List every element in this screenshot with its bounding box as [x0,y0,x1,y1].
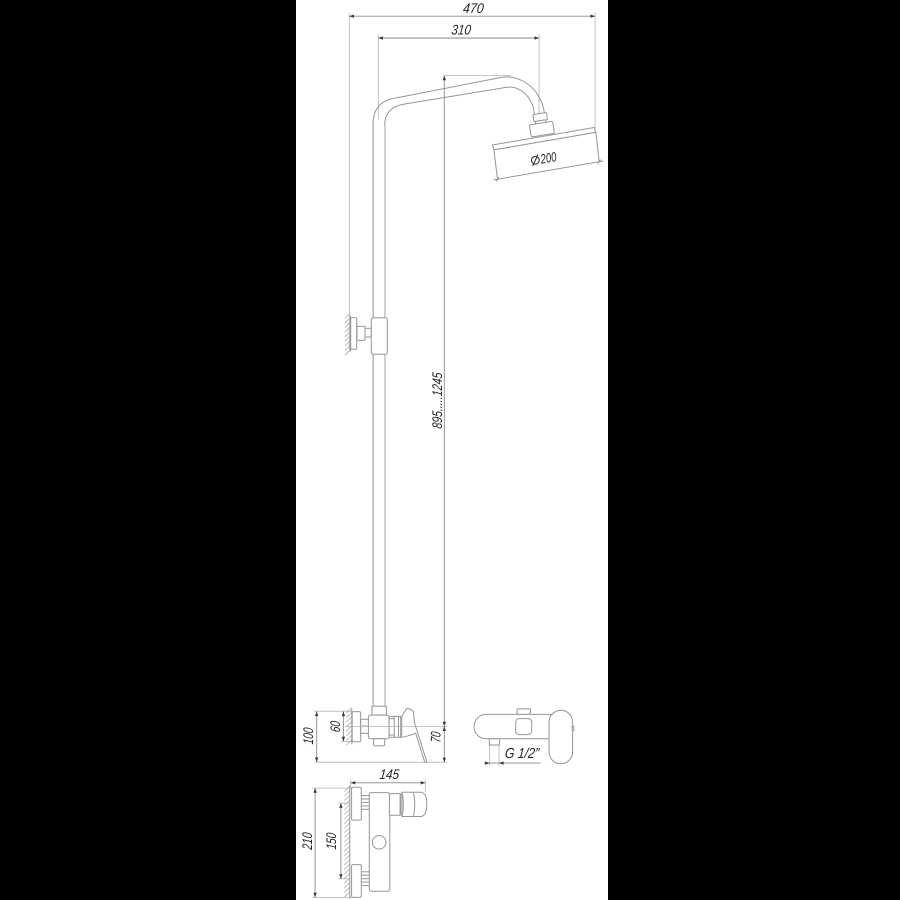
svg-text:145: 145 [379,766,400,782]
svg-text:60: 60 [327,720,343,733]
svg-text:310: 310 [451,22,472,38]
svg-text:150: 150 [323,832,339,850]
svg-text:210: 210 [299,831,315,851]
svg-text:470: 470 [462,0,484,16]
svg-text:G 1/2”: G 1/2” [504,746,541,762]
svg-text:70: 70 [427,731,443,744]
svg-text:100: 100 [300,727,316,745]
svg-text:200: 200 [539,149,558,167]
svg-text:895.....1245: 895.....1245 [429,371,445,429]
